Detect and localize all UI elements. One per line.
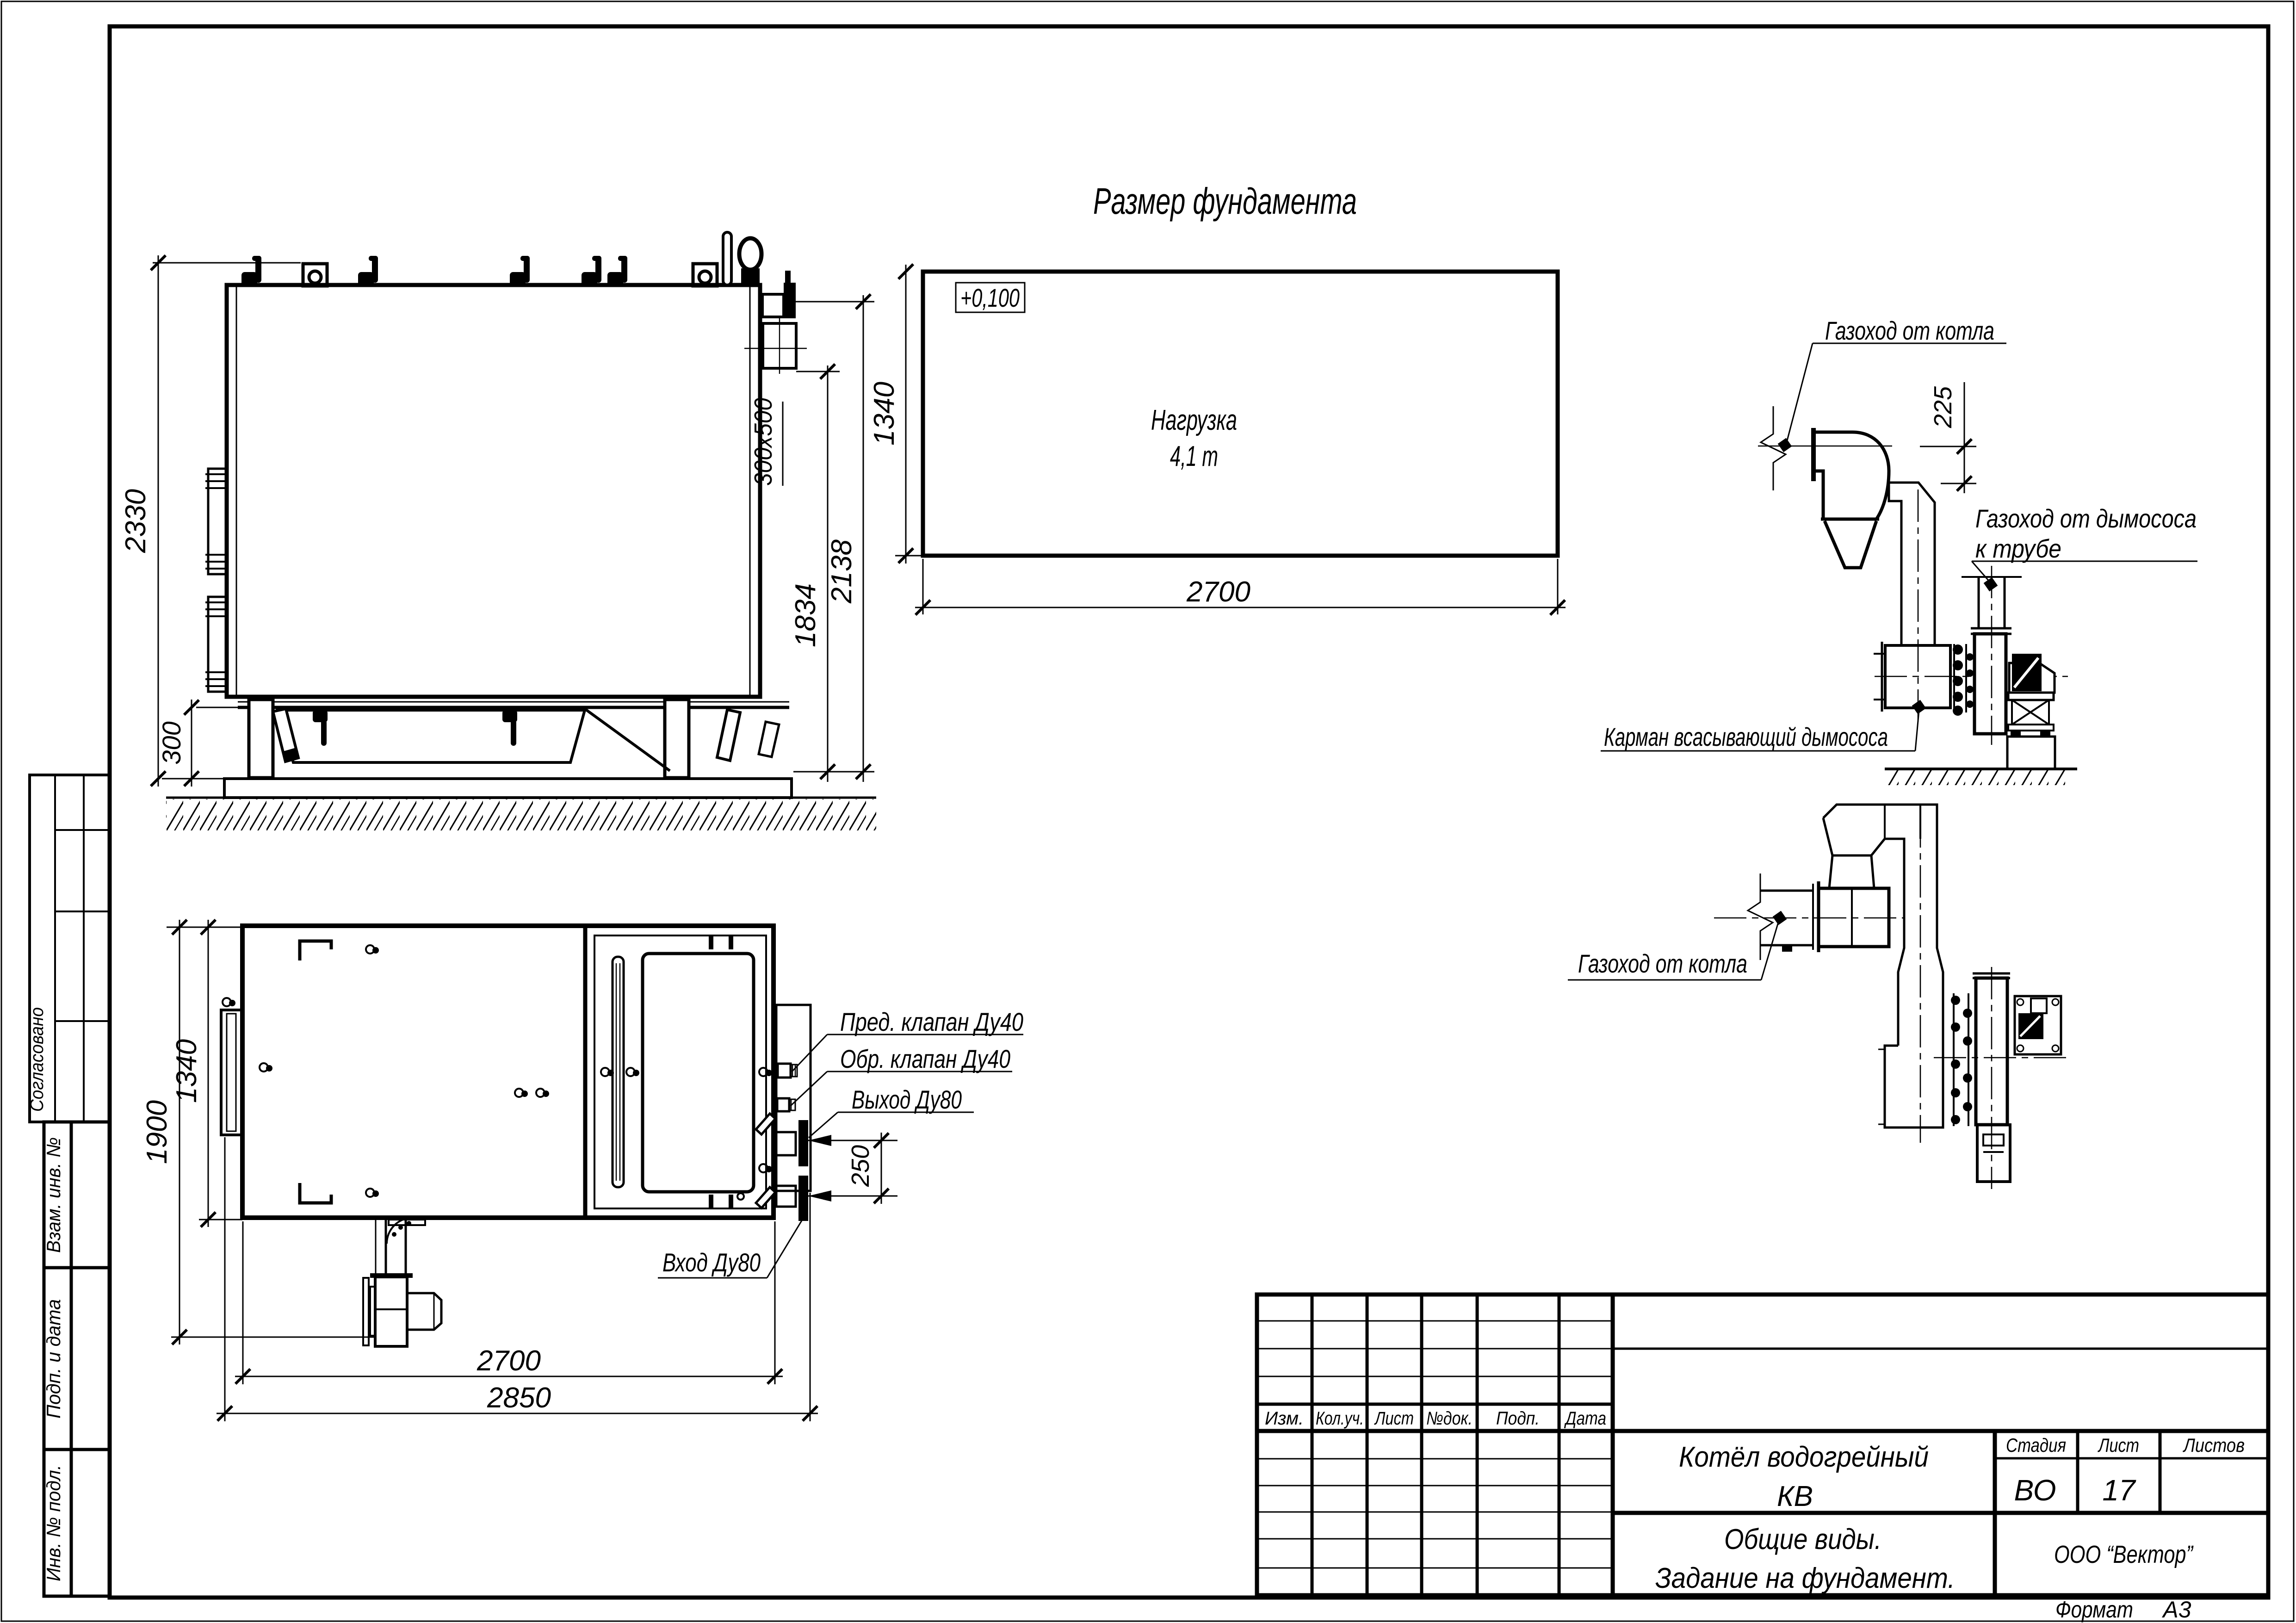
svg-text:2700: 2700 — [1186, 576, 1250, 608]
svg-text:Вход Ду80: Вход Ду80 — [662, 1248, 761, 1277]
svg-text:Формат: Формат — [2055, 1597, 2133, 1623]
svg-text:ВО: ВО — [2014, 1474, 2056, 1507]
svg-text:1900: 1900 — [141, 1100, 173, 1164]
svg-text:Обр. клапан Ду40: Обр. клапан Ду40 — [840, 1044, 1010, 1073]
svg-text:300х500: 300х500 — [749, 398, 777, 486]
svg-text:Общие виды.: Общие виды. — [1724, 1524, 1881, 1555]
svg-text:Задание на фундамент.: Задание на фундамент. — [1655, 1562, 1955, 1594]
svg-text:Инв. № подл.: Инв. № подл. — [43, 1465, 64, 1581]
svg-text:Карман всасывающий дымососа: Карман всасывающий дымососа — [1604, 722, 1888, 751]
svg-text:Размер фундамента: Размер фундамента — [1093, 180, 1357, 222]
svg-text:2850: 2850 — [487, 1382, 551, 1414]
svg-text:1340: 1340 — [868, 382, 900, 446]
svg-text:4,1 т: 4,1 т — [1170, 440, 1218, 472]
svg-text:А3: А3 — [2161, 1597, 2191, 1623]
svg-text:ООО “Вектор”: ООО “Вектор” — [2054, 1541, 2194, 1568]
svg-text:Газоход от котла: Газоход от котла — [1825, 316, 1994, 345]
svg-text:Лист: Лист — [2098, 1434, 2139, 1456]
svg-text:225: 225 — [1929, 386, 1957, 428]
svg-text:17: 17 — [2102, 1474, 2136, 1507]
svg-text:Взам. инв. №: Взам. инв. № — [43, 1137, 64, 1253]
svg-text:Стадия: Стадия — [2006, 1434, 2066, 1456]
svg-text:250: 250 — [847, 1145, 874, 1187]
svg-text:Кол.уч.: Кол.уч. — [1316, 1408, 1364, 1429]
svg-text:2330: 2330 — [120, 489, 152, 553]
svg-text:Газоход от дымососа: Газоход от дымососа — [1975, 504, 2197, 533]
svg-text:2138: 2138 — [826, 539, 858, 604]
svg-text:Согласовано: Согласовано — [27, 1007, 47, 1112]
svg-text:1340: 1340 — [171, 1039, 203, 1103]
svg-text:300: 300 — [157, 721, 186, 764]
svg-text:Листов: Листов — [2182, 1434, 2245, 1456]
svg-text:Нагрузка: Нагрузка — [1151, 404, 1237, 436]
svg-text:Лист: Лист — [1374, 1408, 1414, 1429]
svg-text:КВ: КВ — [1777, 1481, 1813, 1512]
svg-text:1834: 1834 — [790, 583, 822, 647]
svg-text:Котёл водогрейный: Котёл водогрейный — [1679, 1441, 1929, 1473]
svg-text:Выход Ду80: Выход Ду80 — [852, 1085, 962, 1114]
svg-text:+0,100: +0,100 — [960, 283, 1020, 312]
svg-text:Подп.: Подп. — [1496, 1408, 1540, 1429]
svg-text:Подп. и дата: Подп. и дата — [43, 1299, 64, 1419]
svg-text:2700: 2700 — [477, 1345, 541, 1377]
svg-text:Газоход от котла: Газоход от котла — [1578, 949, 1747, 978]
svg-text:к трубе: к трубе — [1975, 534, 2061, 563]
svg-text:Дата: Дата — [1564, 1408, 1606, 1429]
svg-text:Пред. клапан Ду40: Пред. клапан Ду40 — [840, 1007, 1023, 1036]
svg-text:№док.: №док. — [1426, 1408, 1473, 1429]
svg-text:Изм.: Изм. — [1265, 1408, 1304, 1429]
